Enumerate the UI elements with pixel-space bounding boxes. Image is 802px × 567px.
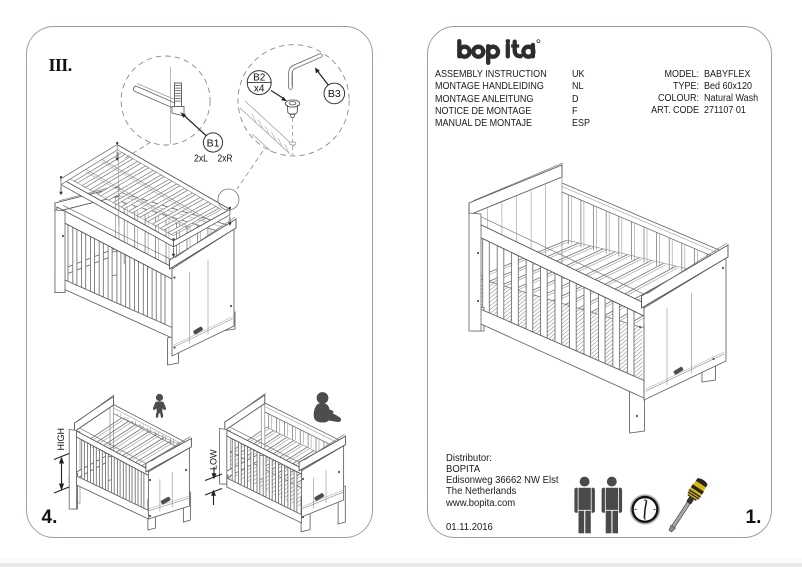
svg-text:x4: x4 [254, 84, 265, 95]
svg-text:B2: B2 [253, 73, 266, 84]
svg-text:B3: B3 [328, 88, 341, 100]
svg-text:2xL: 2xL [194, 154, 208, 165]
svg-text:LOW: LOW [209, 449, 219, 470]
svg-text:B1: B1 [207, 137, 220, 149]
svg-text:HIGH: HIGH [56, 428, 66, 451]
svg-text:2xR: 2xR [218, 154, 233, 165]
